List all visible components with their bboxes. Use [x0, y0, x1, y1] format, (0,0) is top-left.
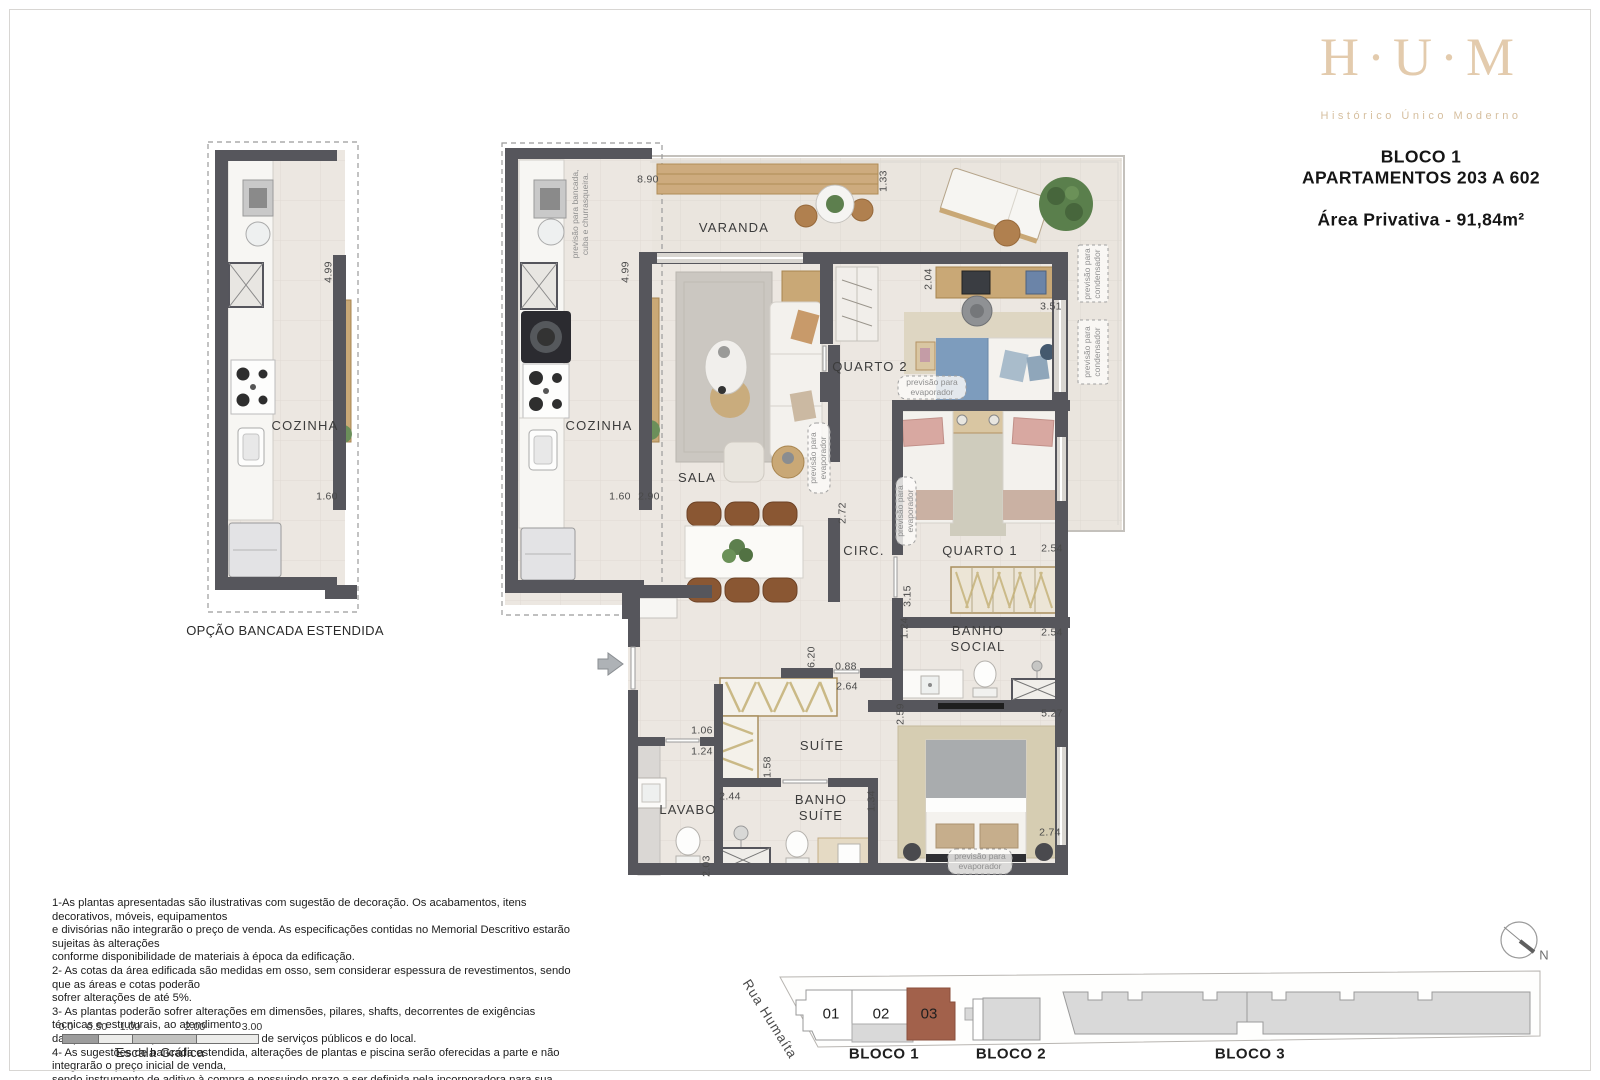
scale-tick: 1.00	[120, 1021, 140, 1033]
dim-label: 1.60	[316, 490, 338, 503]
site-bloco2-building	[983, 998, 1040, 1040]
dim-label: 4.99	[322, 261, 335, 283]
dim-label: 1.06	[691, 724, 713, 737]
scale-caption: Escala Gráfica	[116, 1045, 205, 1061]
entry-arrow-icon	[598, 653, 623, 675]
scale-tick: 0.0	[59, 1021, 74, 1033]
north-label: N	[1539, 948, 1548, 963]
dim-label: 1.24	[898, 617, 911, 639]
site-bloco3-label: BLOCO 3	[1215, 1046, 1285, 1063]
dim-label: 1.60	[609, 490, 631, 503]
dim-label: 2.59	[894, 703, 907, 725]
dim-label: 2.54	[1041, 626, 1063, 639]
room-label-banho-social: BANHO SOCIAL	[951, 623, 1006, 656]
block-title: BLOCO 1	[1381, 147, 1462, 168]
room-label-suite: SUÍTE	[800, 738, 844, 754]
scale-tick: 3.00	[242, 1021, 262, 1033]
dim-label: 2.72	[836, 502, 849, 524]
site-bloco1-label: BLOCO 1	[849, 1046, 919, 1063]
dim-label: 2.04	[922, 268, 935, 290]
brand-logo: H·U·M	[1320, 26, 1522, 88]
dim-label: 3.51	[1040, 300, 1062, 313]
dim-label: 0.88	[835, 660, 857, 673]
option-plan-caption: OPÇÃO BANCADA ESTENDIDA	[186, 623, 384, 639]
floorplan-page: VARANDACOZINHASALAQUARTO 2CIRC.QUARTO 1B…	[0, 0, 1600, 1080]
private-area: Área Privativa - 91,84m²	[1317, 210, 1524, 231]
room-label-circ: CIRC.	[843, 543, 884, 559]
annotation-condensador: previsão para condensador	[1083, 326, 1103, 378]
annotation-evaporador: previsão para evaporador	[896, 485, 916, 537]
dim-label: 2.90	[638, 490, 660, 503]
dim-label: 1.24	[691, 745, 713, 758]
site-plan	[780, 922, 1540, 1047]
dim-label: 1.34	[865, 790, 878, 812]
annotation-bancada: previsão para bancada, cuba e churrasque…	[571, 170, 591, 259]
scale-tick: 2.00	[185, 1021, 205, 1033]
site-unit-label-01: 01	[823, 1006, 840, 1023]
disclaimer-line: 2- As cotas da área edificada são medida…	[52, 965, 572, 992]
annotation-evaporador: previsão para evaporador	[906, 378, 958, 398]
room-label-sala: SALA	[678, 470, 716, 486]
dim-label: 8.90	[637, 173, 659, 186]
dim-label: 5.27	[1041, 707, 1063, 720]
room-label-cozinha: COZINHA	[566, 418, 633, 434]
disclaimer-line: 1-As plantas apresentadas são ilustrativ…	[52, 897, 572, 924]
dim-label: 2.64	[836, 680, 858, 693]
disclaimer-line: conforme disponibilidade de materiais à …	[52, 951, 572, 965]
scale-bar	[62, 1034, 259, 1044]
apartments-range: APARTAMENTOS 203 A 602	[1302, 168, 1540, 189]
site-bloco2-label: BLOCO 2	[976, 1046, 1046, 1063]
annotation-evaporador: previsão para evaporador	[954, 852, 1006, 872]
dim-label: 2.03	[700, 855, 713, 877]
dim-label: 2.54	[1041, 542, 1063, 555]
site-unit-label-02: 02	[873, 1006, 890, 1023]
dim-label: 1.33	[877, 170, 890, 192]
scale-tick: 0.50	[87, 1021, 107, 1033]
room-label-banho-suite: BANHO SUÍTE	[795, 792, 847, 825]
dim-label: 6.20	[805, 646, 818, 668]
dim-label: 4.99	[619, 261, 632, 283]
disclaimer-line: sendo instrumento de aditivo à compra e …	[52, 1074, 572, 1080]
sala-furniture	[676, 271, 824, 602]
disclaimer-line: sofrer alterações de até 5%.	[52, 992, 572, 1006]
room-label-quarto2: QUARTO 2	[832, 359, 908, 375]
dim-label: 2.44	[719, 790, 741, 803]
room-label-lavabo: LAVABO	[659, 802, 716, 818]
site-unit-label-03: 03	[921, 1006, 938, 1023]
room-label-cozinha-opcao: COZINHA	[272, 418, 339, 434]
dim-label: 1.58	[761, 756, 774, 778]
dim-label: 3.15	[901, 585, 914, 607]
suite-furniture	[898, 726, 1058, 864]
room-label-varanda: VARANDA	[699, 220, 769, 236]
brand-tagline: Histórico Único Moderno	[1321, 110, 1522, 122]
disclaimer-line: e divisórias não integrarão o preço de v…	[52, 924, 572, 951]
dim-label: 2.74	[1039, 826, 1061, 839]
room-label-quarto1: QUARTO 1	[942, 543, 1018, 559]
annotation-condensador: previsão para condensador	[1083, 248, 1103, 300]
annotation-evaporador: previsão para evaporador	[809, 432, 829, 484]
